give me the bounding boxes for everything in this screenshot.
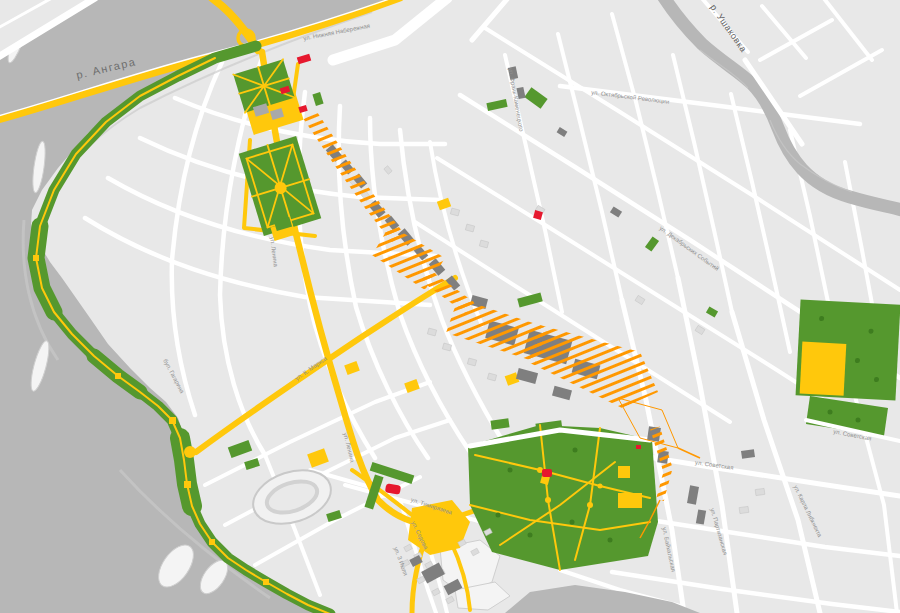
landmark-building [636, 445, 641, 449]
park-right [796, 299, 900, 400]
landmark-building [542, 469, 552, 477]
city-map-svg: р. Ангара р. Ушаковка ул. Нижняя Набереж… [0, 0, 900, 613]
map-canvas[interactable]: р. Ангара р. Ушаковка ул. Нижняя Набереж… [0, 0, 900, 613]
